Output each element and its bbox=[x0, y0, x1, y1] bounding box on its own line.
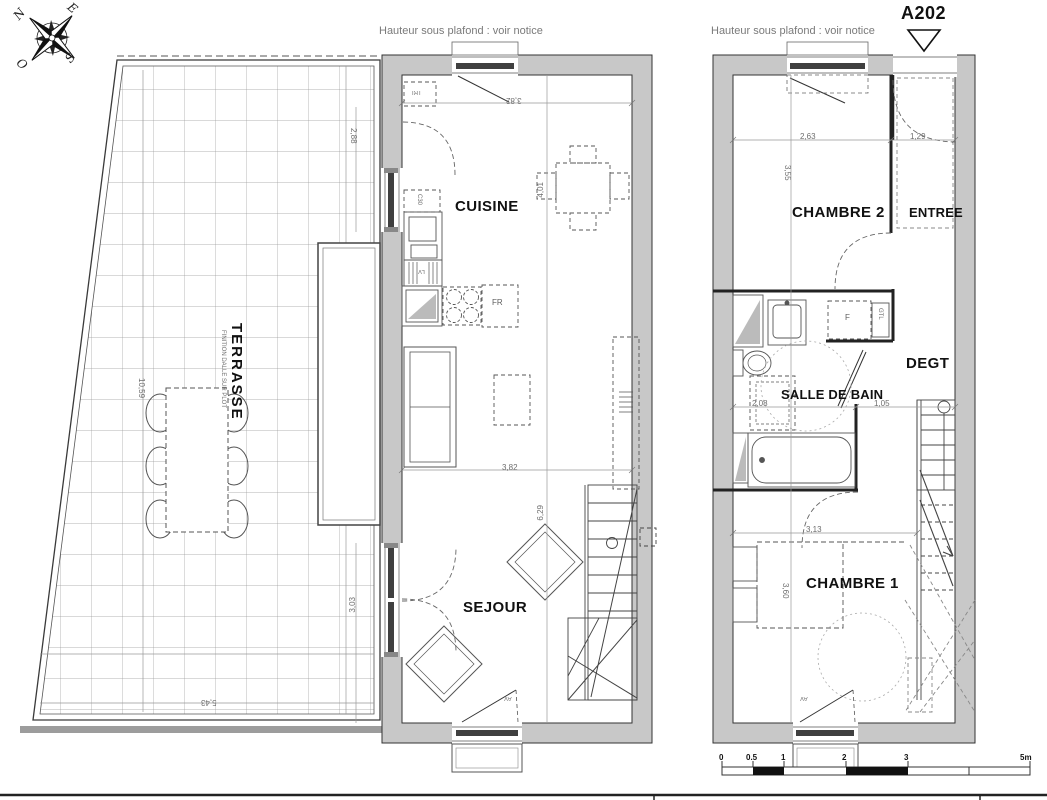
unit-label: A202 bbox=[901, 4, 946, 22]
room-label-chambre1: CHAMBRE 1 bbox=[806, 576, 899, 591]
unit-marker-triangle bbox=[908, 30, 940, 51]
dim-kitchen-depth: 4,01 bbox=[537, 182, 545, 198]
room-label-chambre2: CHAMBRE 2 bbox=[792, 205, 885, 220]
scale-tick-2: 2 bbox=[842, 754, 846, 762]
dim-chambre2-width: 2,63 bbox=[800, 133, 816, 141]
dim-chambre1-width: 3,13 bbox=[806, 526, 822, 534]
ceiling-note-right: Hauteur sous plafond : voir notice bbox=[711, 26, 875, 37]
dim-width-top: 3,82 bbox=[506, 96, 522, 104]
dim-sdb-width: 2,08 bbox=[752, 400, 768, 408]
terrace-planter bbox=[318, 243, 380, 525]
scale-tick-0: 0 bbox=[719, 754, 723, 762]
room-label-degt: DEGT bbox=[906, 356, 949, 371]
title-block-line bbox=[0, 795, 1047, 800]
floor-plan-canvas: Hauteur sous plafond : voir notice Haute… bbox=[0, 0, 1047, 800]
tag-c30: C30 bbox=[416, 194, 422, 205]
sofa bbox=[404, 347, 456, 467]
dim-width-mid: 3,82 bbox=[502, 464, 518, 472]
coffee-table bbox=[494, 375, 530, 425]
dim-degt-width: 1,05 bbox=[874, 400, 890, 408]
tag-f: F bbox=[845, 314, 850, 322]
room-label-salle-de-bain: SALLE DE BAIN bbox=[781, 388, 883, 401]
room-label-cuisine: CUISINE bbox=[455, 199, 519, 214]
room-label-sejour: SEJOUR bbox=[463, 600, 527, 615]
scale-bar-graphic bbox=[722, 761, 1030, 775]
dim-sejour-depth: 6,29 bbox=[537, 505, 545, 521]
dim-chambre2-depth: 3,55 bbox=[783, 165, 791, 181]
dining-table bbox=[537, 146, 629, 230]
room-label-entree: ENTREE bbox=[909, 206, 963, 219]
ceiling-note-left: Hauteur sous plafond : voir notice bbox=[379, 26, 543, 37]
terrasse-finish-note: FINITION DALLE SUR PLOT bbox=[220, 330, 226, 408]
tag-av-left: AV bbox=[504, 695, 512, 701]
tag-gtl: GTL bbox=[877, 308, 883, 320]
room-label-terrasse: TERRASSE bbox=[229, 323, 244, 421]
dim-chambre1-depth: 3,60 bbox=[781, 583, 789, 599]
dim-sejour-window: 3,03 bbox=[349, 597, 357, 613]
left-plan-windows bbox=[384, 42, 522, 772]
left-plan-walls bbox=[381, 53, 652, 745]
scale-tick-3: 3 bbox=[904, 754, 908, 762]
tag-fr: FR bbox=[492, 299, 503, 307]
scale-tick-5m: 5m bbox=[1020, 754, 1032, 762]
scale-tick-05: 0.5 bbox=[746, 754, 757, 762]
dim-terrace-length: 10,59 bbox=[137, 378, 145, 398]
tag-lv: LV bbox=[418, 268, 425, 274]
scale-tick-1: 1 bbox=[781, 754, 785, 762]
dim-entree-width: 1,29 bbox=[910, 133, 926, 141]
bed-and-nightstands bbox=[733, 542, 906, 701]
tag-av-right: AV bbox=[800, 695, 808, 701]
tag-tri: TRI bbox=[412, 89, 422, 95]
dim-kitchen-window: 2,88 bbox=[349, 128, 357, 144]
dim-terrace-width: 5,43 bbox=[201, 698, 217, 706]
